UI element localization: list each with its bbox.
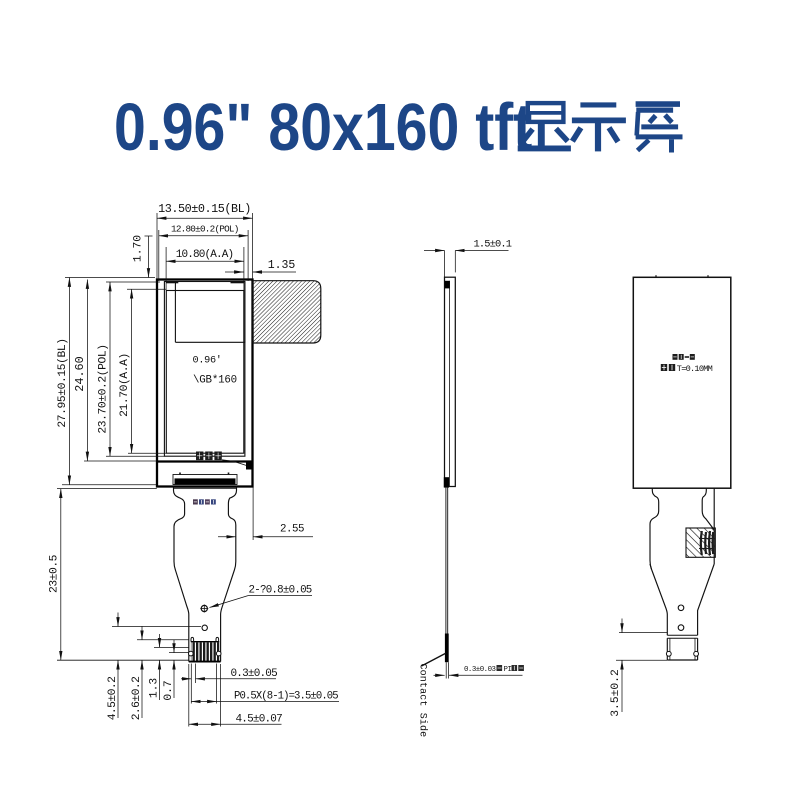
svg-text:0.3±0.05: 0.3±0.05 bbox=[231, 668, 278, 680]
svg-text:0.7: 0.7 bbox=[163, 680, 175, 700]
svg-text:0.3±0.03: 0.3±0.03 bbox=[464, 666, 496, 674]
svg-text:23±0.5: 23±0.5 bbox=[48, 554, 60, 593]
svg-text:1.70: 1.70 bbox=[133, 235, 145, 262]
svg-text:4.5±0.2: 4.5±0.2 bbox=[107, 677, 119, 721]
svg-text:4.5±0.07: 4.5±0.07 bbox=[236, 713, 283, 725]
svg-text:12.80±0.2(POL): 12.80±0.2(POL) bbox=[171, 224, 239, 235]
svg-text:0.96': 0.96' bbox=[193, 355, 222, 367]
svg-text:23.70±0.2(POL): 23.70±0.2(POL) bbox=[98, 344, 110, 433]
svg-text:2.55: 2.55 bbox=[280, 524, 304, 536]
svg-text:1.3: 1.3 bbox=[148, 678, 160, 699]
svg-text:21.70(A.A): 21.70(A.A) bbox=[119, 353, 131, 417]
svg-text:3.5±0.2: 3.5±0.2 bbox=[610, 669, 622, 716]
svg-text:13.50±0.15(BL): 13.50±0.15(BL) bbox=[158, 202, 251, 216]
svg-text:27.95±0.15(BL): 27.95±0.15(BL) bbox=[57, 338, 69, 427]
svg-text:24.60: 24.60 bbox=[73, 356, 87, 391]
svg-text:T=0.10MM: T=0.10MM bbox=[677, 364, 713, 374]
svg-text:10.80(A.A): 10.80(A.A) bbox=[176, 249, 234, 261]
svg-text:2.6±0.2: 2.6±0.2 bbox=[131, 677, 143, 721]
svg-text:P0.5X(8-1)=3.5±0.05: P0.5X(8-1)=3.5±0.05 bbox=[234, 691, 338, 703]
svg-text:1.35: 1.35 bbox=[268, 259, 296, 272]
svg-text:1.5±0.1: 1.5±0.1 bbox=[474, 238, 512, 250]
svg-text:2-?0.8±0.05: 2-?0.8±0.05 bbox=[249, 585, 312, 597]
svg-text:0.96" 80x160 tft: 0.96" 80x160 tft bbox=[114, 91, 532, 165]
svg-text:PI: PI bbox=[504, 666, 512, 674]
svg-text:Contact Side: Contact Side bbox=[417, 664, 429, 738]
svg-text:\GB*160: \GB*160 bbox=[193, 375, 237, 387]
